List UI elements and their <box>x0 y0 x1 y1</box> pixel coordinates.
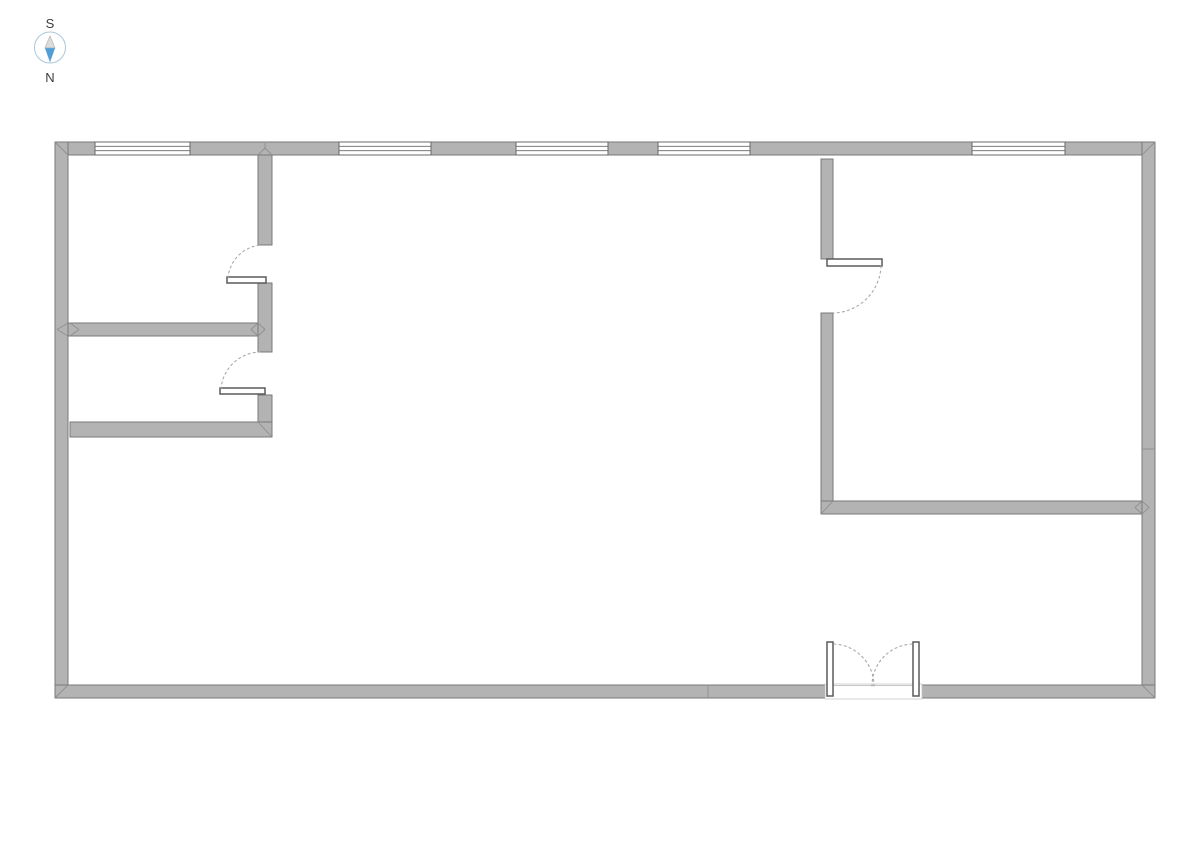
partition-nw-horizontal <box>68 323 258 336</box>
partition-ne-vertical-upper <box>821 159 833 259</box>
door-sw-room-leaf <box>220 388 265 394</box>
door-ne-room-leaf <box>827 259 882 266</box>
double-door-opening <box>825 684 922 699</box>
compass-needle-south-half <box>45 36 55 48</box>
floor-plan-layers <box>55 142 1155 699</box>
window-2 <box>339 142 431 155</box>
exterior-wall-bottom-west <box>55 685 825 698</box>
window-4 <box>658 142 750 155</box>
compass-rose: S N <box>35 16 66 85</box>
partition-ne-horizontal <box>821 501 1142 514</box>
door-sw-room-swing-arc <box>221 352 260 389</box>
window-3 <box>516 142 608 155</box>
compass-south-label: S <box>46 16 55 31</box>
door-nw-upper-room-leaf <box>227 277 266 283</box>
door-nw-upper-room-swing-arc <box>228 245 262 278</box>
window-1 <box>95 142 190 155</box>
exterior-wall-bottom-east <box>921 685 1155 698</box>
partition-sw-horizontal <box>70 422 272 437</box>
door-ne-room-swing-arc <box>834 266 881 313</box>
floor-plan: S N <box>0 0 1191 841</box>
exterior-wall-left <box>55 142 68 698</box>
partition-ne-vertical-lower <box>821 313 833 501</box>
window-5 <box>972 142 1065 155</box>
partition-nw-vertical-upper <box>258 155 272 245</box>
double-door-left-swing-arc <box>834 644 874 686</box>
double-door-right-leaf <box>913 642 919 696</box>
double-door-left-leaf <box>827 642 833 696</box>
compass-north-label: N <box>45 70 54 85</box>
compass-needle-north-half <box>45 48 55 62</box>
double-door-right-swing-arc <box>872 644 912 686</box>
partition-nw-vertical-lower <box>258 395 272 422</box>
floor-plan-page: S N <box>0 0 1191 841</box>
exterior-wall-right <box>1142 142 1155 698</box>
partition-nw-vertical-mid <box>258 283 272 352</box>
